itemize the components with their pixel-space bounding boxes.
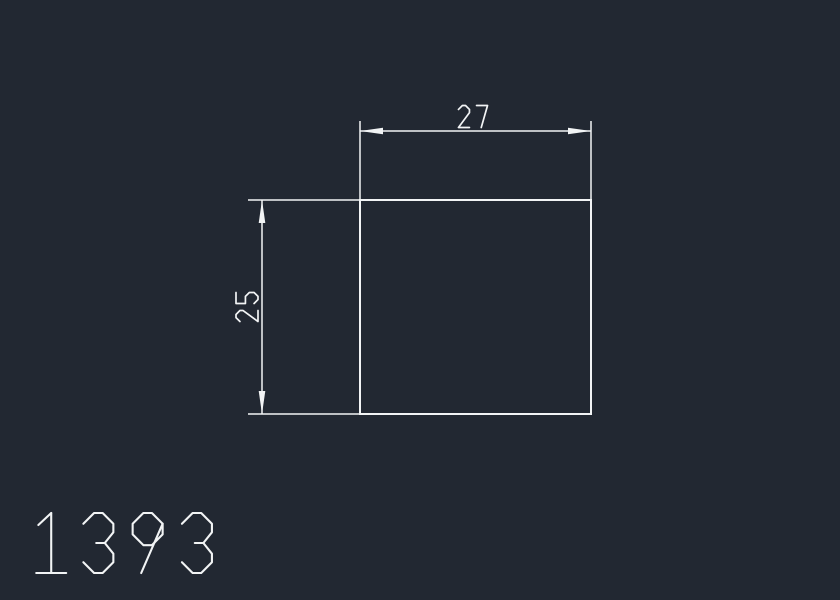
width-dimension-label [458, 106, 487, 128]
arrowhead-left-icon [360, 128, 383, 135]
arrowhead-top-icon [259, 200, 266, 223]
height-dimension-label [236, 292, 258, 321]
height-dimension [236, 200, 360, 414]
cad-viewport[interactable] [0, 0, 840, 600]
width-dimension [360, 106, 591, 200]
profile-number-label [36, 513, 212, 573]
drawing-canvas [0, 0, 840, 600]
arrowhead-right-icon [568, 128, 591, 135]
profile-rectangle [360, 200, 591, 414]
part-outline [360, 200, 591, 414]
arrowhead-bottom-icon [259, 391, 266, 414]
